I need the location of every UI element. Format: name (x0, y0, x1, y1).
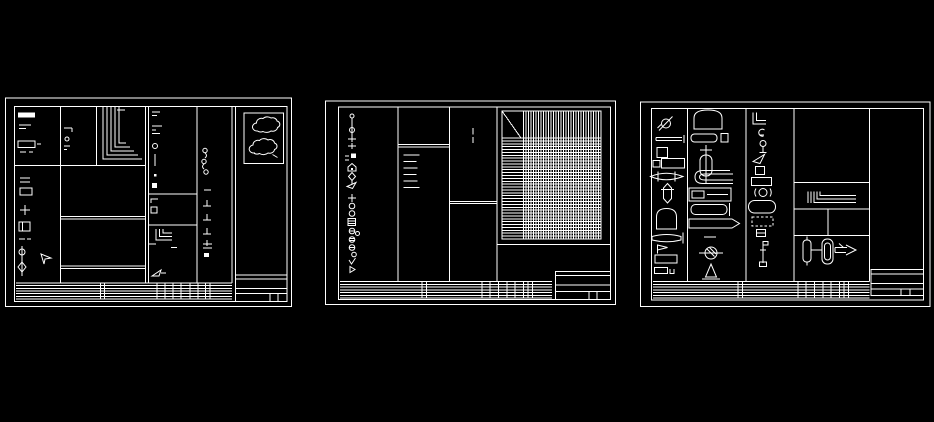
title-block (556, 272, 611, 300)
block-symbol-column-2 (689, 110, 740, 279)
nested-angle-detail (103, 107, 142, 159)
parts-list-strip (16, 283, 232, 299)
schedule-grid-table (502, 111, 601, 239)
revision-cloud-icon (249, 139, 277, 155)
parts-list-strip (340, 282, 552, 299)
symbol-column-b (202, 148, 212, 257)
lens-symbol (651, 173, 684, 180)
cone-symbol (706, 264, 717, 277)
door-arch-symbol (694, 110, 722, 129)
flag-symbol (658, 245, 668, 250)
cad-model-space-canvas (0, 0, 934, 422)
drawing-svg (0, 0, 934, 422)
title-block (236, 275, 288, 302)
arrow-symbol (753, 155, 765, 164)
revision-cloud-icon (252, 117, 279, 133)
solid-bar-symbol (18, 113, 35, 118)
revision-cloud-box (244, 113, 284, 164)
sheet-border (326, 101, 616, 305)
drawing-sheet-3[interactable] (641, 102, 931, 307)
title-block (871, 270, 924, 296)
legend-symbol-column (345, 114, 360, 273)
pointer-symbol (41, 254, 51, 264)
block-symbol-column-1 (651, 117, 685, 274)
drawing-sheet-2[interactable] (326, 101, 616, 305)
drawing-sheet-1[interactable] (6, 98, 292, 307)
legend-symbol-column (18, 113, 51, 277)
door-arch-symbol (657, 209, 677, 230)
nested-bracket-detail (808, 192, 856, 204)
sheet-border (641, 102, 931, 307)
parts-list-strip (653, 282, 870, 299)
note-lines-cell (404, 155, 420, 188)
lever-mechanism-detail (803, 237, 856, 266)
detail-mark-cell (64, 128, 72, 150)
block-symbol-column-3 (749, 113, 776, 267)
dashed-rect-symbol (752, 217, 773, 226)
